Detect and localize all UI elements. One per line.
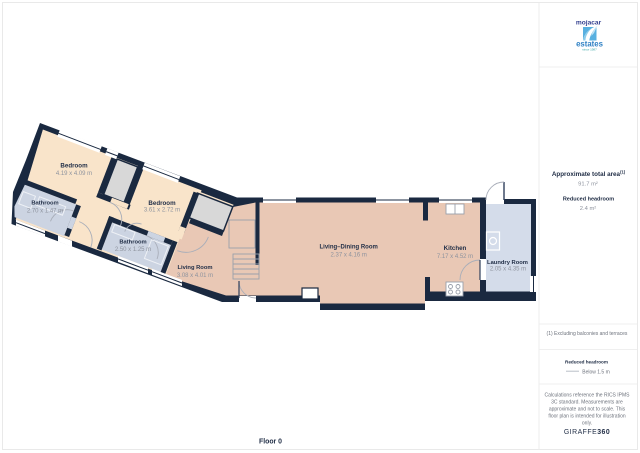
svg-text:Floor 0: Floor 0 [259, 439, 282, 446]
svg-text:Bathroom: Bathroom [119, 240, 146, 246]
svg-text:Living Room: Living Room [177, 265, 212, 271]
svg-text:Bedroom: Bedroom [148, 200, 176, 207]
svg-text:Reduced headroom: Reduced headroom [563, 197, 614, 203]
svg-text:mojacar: mojacar [576, 20, 602, 27]
svg-text:floor plan is intended for ill: floor plan is intended for illustration [548, 414, 625, 420]
svg-text:2.50 x 1.25 m: 2.50 x 1.25 m [115, 247, 151, 253]
svg-text:4.19 x 4.09 m: 4.19 x 4.09 m [56, 171, 92, 177]
svg-text:Kitchen: Kitchen [444, 245, 467, 252]
svg-text:2.70 x 1.47 m: 2.70 x 1.47 m [27, 209, 63, 215]
svg-text:GIRAFFE360: GIRAFFE360 [564, 429, 610, 436]
svg-text:Living–Dining Room: Living–Dining Room [320, 245, 378, 251]
svg-text:Bathroom: Bathroom [31, 201, 58, 207]
svg-text:Reduced headroom: Reduced headroom [565, 360, 608, 365]
svg-text:3.08 x 4.01 m: 3.08 x 4.01 m [177, 273, 213, 279]
svg-text:91.7 m²: 91.7 m² [578, 182, 598, 188]
svg-text:3.61 x 2.72 m: 3.61 x 2.72 m [144, 208, 180, 214]
svg-text:2.05 x 4.35 m: 2.05 x 4.35 m [490, 267, 526, 273]
svg-text:2.4 m²: 2.4 m² [580, 206, 596, 212]
svg-text:Bedroom: Bedroom [60, 163, 88, 170]
svg-text:(1) Excluding balconies and te: (1) Excluding balconies and terraces [547, 331, 628, 337]
svg-text:only.: only. [582, 421, 592, 427]
svg-text:Calculations reference the RIC: Calculations reference the RICS IPMS [544, 393, 630, 399]
svg-text:2.37 x 4.16 m: 2.37 x 4.16 m [331, 253, 367, 259]
svg-text:approximate and not to scale.: approximate and not to scale. This [549, 407, 626, 413]
svg-text:Approximate total area(1): Approximate total area(1) [552, 170, 626, 178]
svg-text:Below 1.5 m: Below 1.5 m [582, 369, 610, 375]
svg-text:since 1987: since 1987 [582, 48, 597, 52]
svg-text:Laundry Room: Laundry Room [487, 260, 528, 266]
svg-text:7.17 x 4.52 m: 7.17 x 4.52 m [437, 254, 473, 260]
svg-text:3C standard. Measurements are: 3C standard. Measurements are [551, 400, 623, 406]
